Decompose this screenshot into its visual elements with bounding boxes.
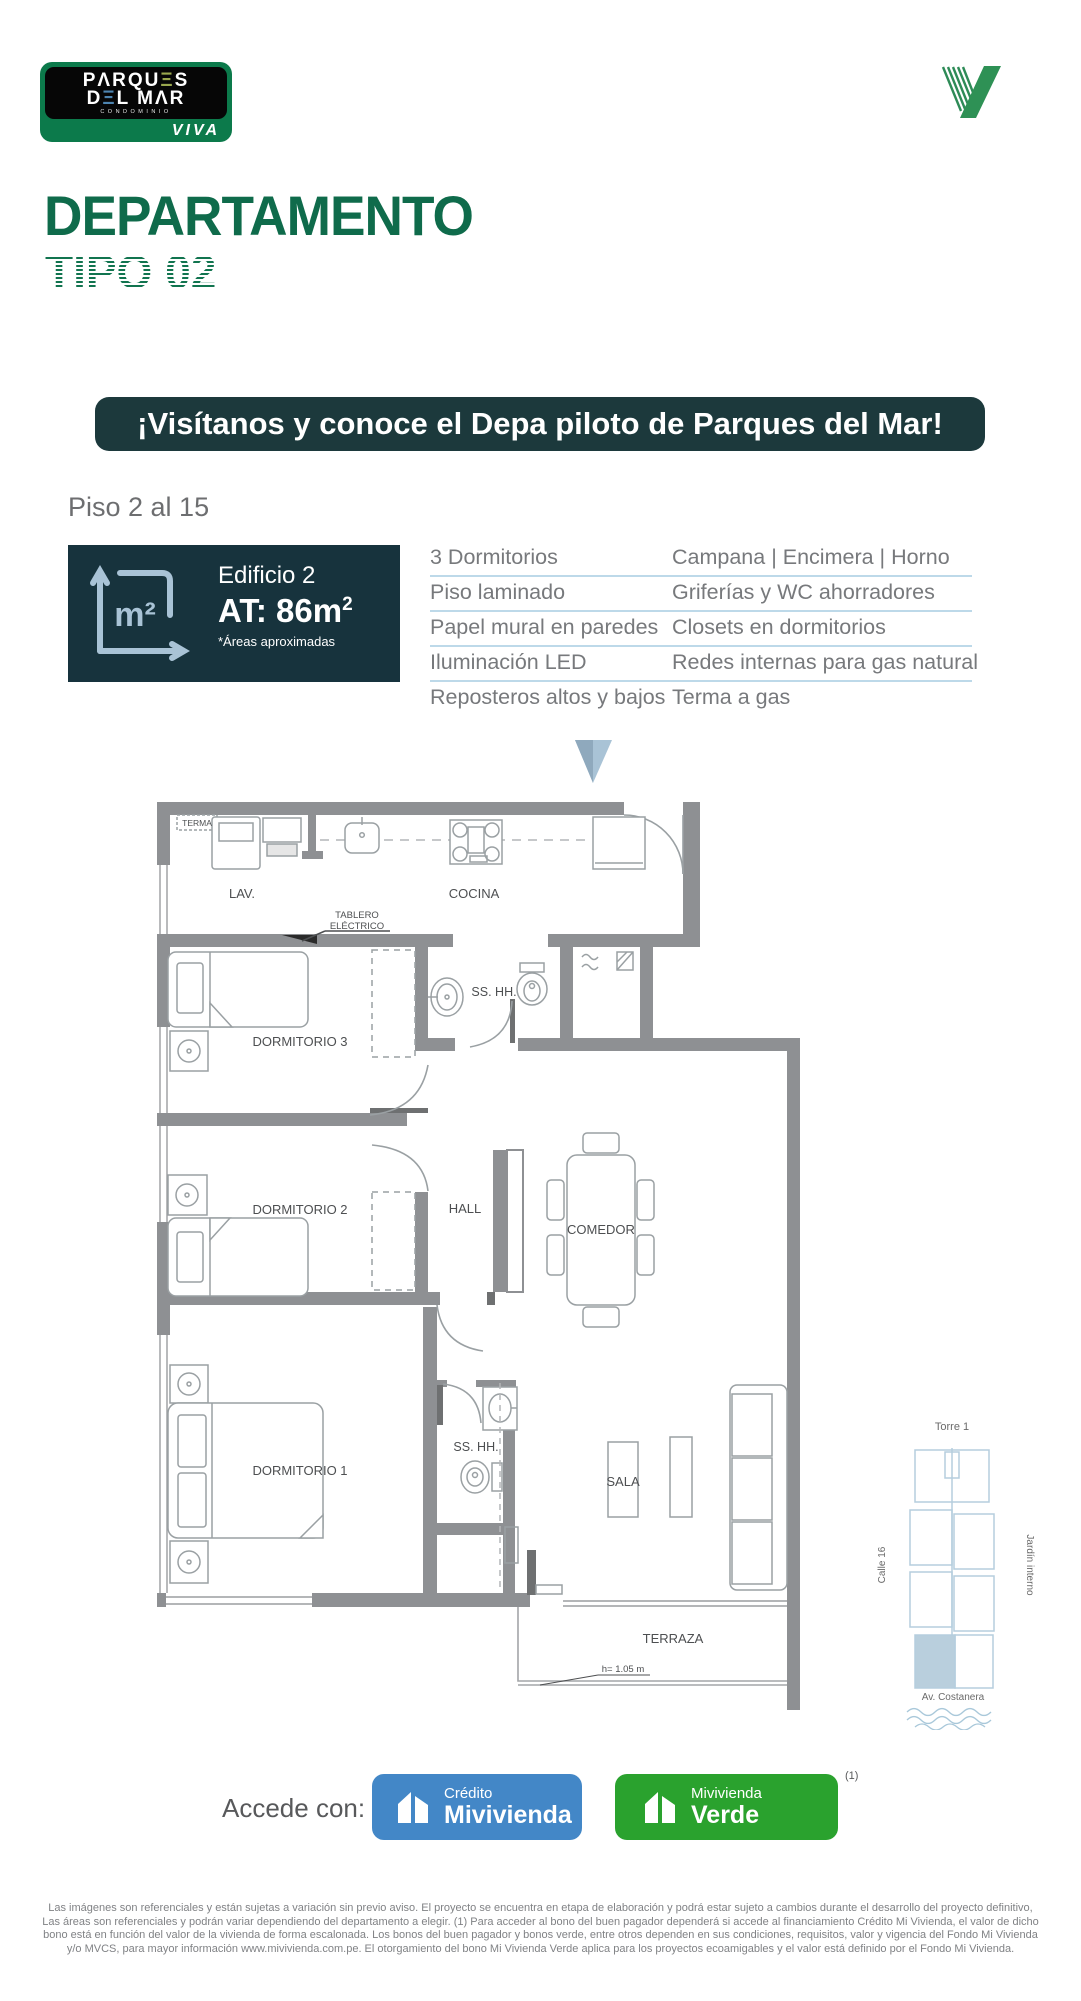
label-bath2: SS. HH.	[453, 1440, 498, 1454]
features-column-2: Campana | Encimera | Horno Griferías y W…	[672, 542, 972, 715]
terraza-parapet	[518, 1607, 787, 1685]
promo-banner: ¡Visítanos y conoce el Depa piloto de Pa…	[95, 397, 985, 451]
label-height-note: h= 1.05 m	[602, 1664, 645, 1675]
btn1-top-label: Crédito	[444, 1786, 572, 1801]
laundry-sink	[263, 818, 301, 856]
feature-item: Redes internas para gas natural	[672, 647, 972, 682]
sea-waves-icon	[907, 1709, 991, 1731]
mivivienda-house-icon	[641, 1788, 679, 1826]
terraza-door	[536, 1585, 562, 1594]
mivivienda-house-icon	[394, 1788, 432, 1826]
washer	[212, 817, 260, 869]
hall-closet	[507, 1150, 523, 1292]
viva-brand: VIVA	[172, 122, 220, 140]
mivivienda-verde-button[interactable]: Mivivienda Verde	[615, 1774, 838, 1840]
square-meters-icon: m²	[86, 563, 204, 663]
north-arrow-icon	[575, 740, 612, 783]
garden-label: Jardín interno	[1024, 1534, 1035, 1596]
sofa	[730, 1385, 787, 1590]
feature-item: Piso laminado	[430, 577, 682, 612]
logo-line2: DΞL MΛR	[45, 90, 227, 108]
logo-subtitle: CONDOMINIO	[45, 109, 227, 115]
wall-stub	[308, 815, 316, 853]
bed-dorm3	[168, 952, 308, 1027]
label-terma: TERMA	[182, 818, 212, 828]
nightstand1-dorm1	[170, 1365, 208, 1403]
nightstand-dorm3	[170, 1031, 208, 1071]
building-label: Edificio 2	[218, 562, 353, 590]
v-logo-icon	[940, 66, 1004, 120]
label-tablero-1: TABLERO	[335, 910, 379, 921]
label-dorm2: DORMITORIO 2	[252, 1202, 347, 1217]
label-sala: SALA	[606, 1474, 640, 1489]
highlighted-unit	[915, 1635, 955, 1688]
access-with-label: Accede con:	[222, 1793, 365, 1824]
svg-text:m²: m²	[114, 596, 156, 634]
bath1-sink	[428, 978, 463, 1016]
label-comedor: COMEDOR	[567, 1222, 635, 1237]
closet-dorm2	[372, 1192, 415, 1290]
page-subtitle: TIPO 02	[45, 245, 216, 299]
flyer-page: PΛRQUΞS DΞL MΛR CONDOMINIO VIVA DEPARTAM…	[0, 0, 1081, 2001]
site-map: Torre 1 Calle 16 Jardín interno Av. Cost…	[855, 1400, 1075, 1730]
feature-item: Closets en dormitorios	[672, 612, 972, 647]
feature-item: Papel mural en paredes	[430, 612, 682, 647]
bed-dorm2	[168, 1218, 308, 1296]
btn2-top-label: Mivivienda	[691, 1786, 762, 1801]
label-cocina: COCINA	[449, 886, 500, 901]
bath1-toilet	[517, 963, 547, 1005]
closet-dorm3	[372, 950, 415, 1057]
floors-label: Piso 2 al 15	[68, 492, 209, 523]
credito-mivivienda-button[interactable]: Crédito Mivivienda	[372, 1774, 582, 1840]
label-dorm3: DORMITORIO 3	[252, 1034, 347, 1049]
stove	[450, 820, 502, 864]
bath2-toilet	[461, 1461, 502, 1493]
shower-symbol	[582, 952, 633, 970]
area-value: AT: 86m2	[218, 592, 353, 630]
feature-item: Terma a gas	[672, 682, 972, 715]
label-lav: LAV.	[229, 886, 255, 901]
label-dorm1: DORMITORIO 1	[252, 1463, 347, 1478]
height-note-leader	[540, 1675, 598, 1685]
feature-item: Campana | Encimera | Horno	[672, 542, 972, 577]
feature-item: Griferías y WC ahorradores	[672, 577, 972, 612]
fridge	[593, 817, 645, 869]
kitchen-sink	[345, 817, 379, 853]
feature-item: 3 Dormitorios	[430, 542, 682, 577]
feature-item: Reposteros altos y bajos	[430, 682, 682, 715]
label-hall: HALL	[449, 1201, 482, 1216]
area-infobox: m² Edificio 2 AT: 86m2 *Áreas aproximada…	[68, 545, 400, 682]
page-title: DEPARTAMENTO	[44, 183, 473, 248]
footnote-marker: (1)	[845, 1770, 858, 1782]
door-arcs	[370, 815, 683, 1423]
avenue-label: Av. Costanera	[922, 1692, 985, 1703]
wall-stub	[302, 851, 323, 859]
parques-del-mar-logo: PΛRQUΞS DΞL MΛR CONDOMINIO VIVA	[40, 62, 232, 142]
legal-disclaimer: Las imágenes son referenciales y están s…	[40, 1902, 1041, 1956]
features-column-1: 3 Dormitorios Piso laminado Papel mural …	[430, 542, 682, 715]
btn2-bottom-label: Verde	[691, 1803, 762, 1828]
floor-plan: TERMA LAV. COCINA TABLERO ELÉCTRICO DORM…	[120, 735, 820, 1710]
area-note: *Áreas aproximadas	[218, 634, 353, 649]
btn1-bottom-label: Mivivienda	[444, 1803, 572, 1828]
label-bath1: SS. HH.	[471, 985, 516, 999]
site-map-tower-label: Torre 1	[935, 1421, 969, 1433]
label-terraza: TERRAZA	[643, 1631, 704, 1646]
logo-wordmark: PΛRQUΞS DΞL MΛR CONDOMINIO	[45, 67, 227, 119]
feature-item: Iluminación LED	[430, 647, 682, 682]
street-label-calle16: Calle 16	[877, 1546, 888, 1583]
nightstand-dorm2	[168, 1175, 207, 1215]
nightstand2-dorm1	[170, 1541, 208, 1583]
label-tablero-2: ELÉCTRICO	[330, 921, 384, 932]
